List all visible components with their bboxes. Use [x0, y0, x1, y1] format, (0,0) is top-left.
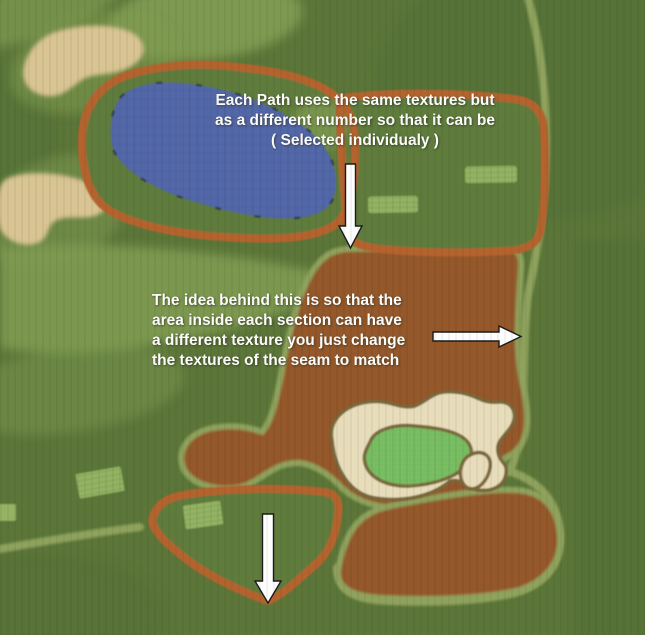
terrain-editor-viewport: Each Path uses the same textures but as …	[0, 0, 645, 635]
annotation-seam-note: The idea behind this is so that the area…	[152, 291, 405, 371]
note-line: area inside each section can have	[152, 311, 405, 331]
green-island	[331, 392, 514, 500]
tee-box-upper-mid	[368, 196, 418, 214]
rough-shade-blob	[575, 240, 645, 635]
annotation-path-note: Each Path uses the same textures but as …	[200, 91, 510, 151]
tee-box-upper-right	[465, 166, 517, 184]
tee-box-left-edge	[0, 504, 16, 521]
note-line: a different texture you just change	[152, 331, 405, 351]
note-line: ( Selected individualy )	[200, 131, 510, 151]
note-line: the textures of the seam to match	[152, 351, 405, 371]
note-line: Each Path uses the same textures but	[200, 91, 510, 111]
note-line: The idea behind this is so that the	[152, 291, 405, 311]
note-line: as a different number so that it can be	[200, 111, 510, 131]
